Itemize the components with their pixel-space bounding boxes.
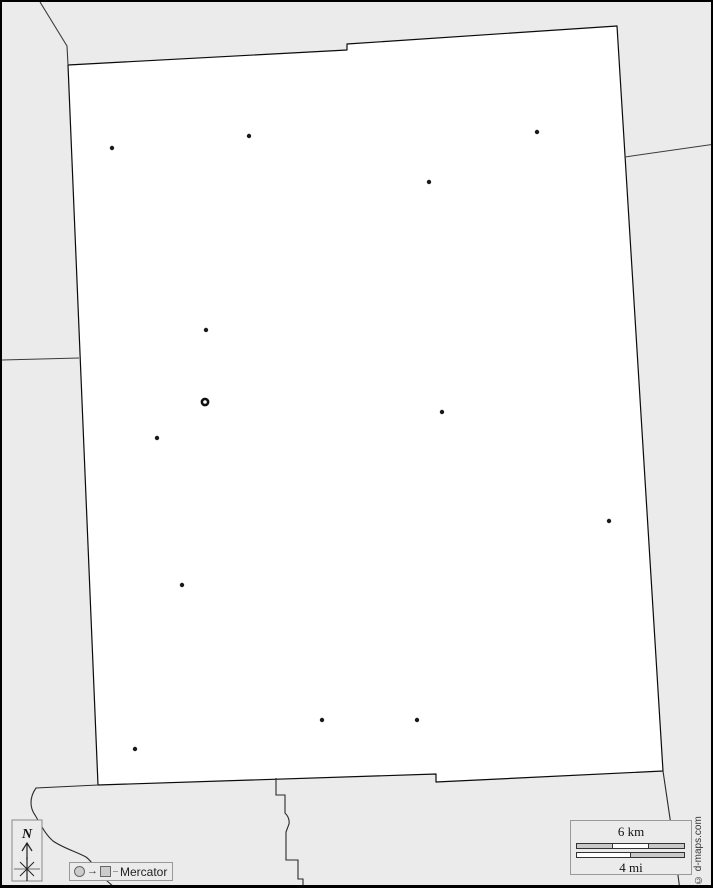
legend-arrow-icon: → — [87, 866, 98, 877]
scale-mi-segment — [630, 852, 685, 858]
scale-mi-label: 4 mi — [571, 861, 691, 874]
scale-km-segment — [576, 843, 613, 849]
town-dot — [247, 134, 251, 138]
scale-mi-bar — [576, 852, 686, 858]
legend-box: → Mercator — [69, 862, 173, 881]
scale-km-bar — [576, 843, 686, 849]
legend-tick — [113, 871, 118, 872]
town-dot — [440, 410, 444, 414]
town-dot — [133, 747, 137, 751]
seat-symbol-icon — [100, 866, 111, 877]
scale-km-segment — [648, 843, 685, 849]
town-symbol-icon — [74, 866, 85, 877]
town-dot — [427, 180, 431, 184]
town-dot — [535, 130, 539, 134]
credit-text: © d-maps.com — [693, 819, 705, 885]
scale-km-segment — [612, 843, 649, 849]
town-dot — [180, 583, 184, 587]
town-dot — [415, 718, 419, 722]
scale-km-label: 6 km — [571, 825, 691, 838]
scale-box: 6 km 4 mi — [570, 820, 692, 875]
legend-label: Mercator — [120, 866, 167, 878]
town-dot — [320, 718, 324, 722]
map-viewport: N → Mercator 6 km — [0, 0, 713, 888]
compass-label: N — [21, 827, 33, 842]
town-dot — [204, 328, 208, 332]
town-dot — [607, 519, 611, 523]
county-region — [68, 26, 663, 785]
town-dot — [110, 146, 114, 150]
map-canvas: N — [2, 2, 713, 888]
town-dot — [155, 436, 159, 440]
compass-box: N — [12, 820, 42, 881]
scale-mi-segment — [576, 852, 631, 858]
